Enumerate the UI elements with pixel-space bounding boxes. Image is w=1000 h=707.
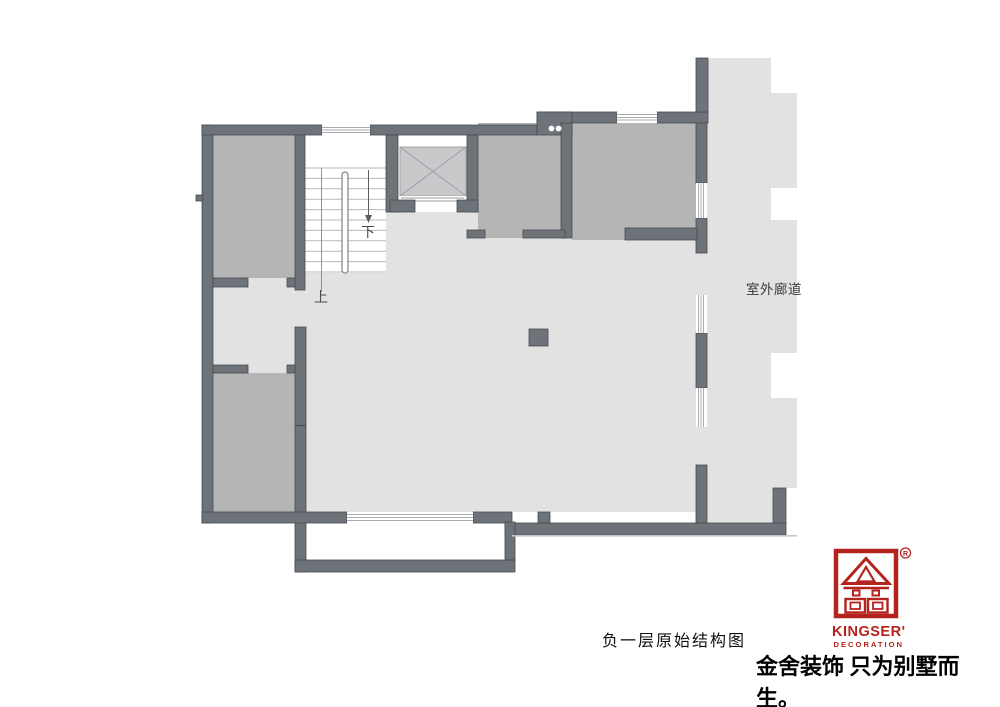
- stair-up-label: 上: [314, 289, 328, 305]
- brand-slogan: 金舍装饰 只为别墅而生。: [756, 649, 1000, 707]
- kingser-logo: R KINGSER' DECORATION: [828, 543, 918, 651]
- window-east-1: [696, 183, 707, 218]
- wall-shadow-line: [512, 535, 797, 537]
- brand-name: KINGSER': [832, 624, 906, 640]
- registered-mark-icon: R: [901, 548, 911, 558]
- stair-handrail: [342, 172, 348, 273]
- window-top-stair: [322, 125, 370, 135]
- logo-mark-icon: [836, 551, 896, 616]
- window-east-2: [696, 295, 707, 333]
- staircase: [305, 135, 386, 292]
- window-top-right: [617, 112, 657, 123]
- corridor-label: 室外廊道: [746, 281, 802, 297]
- page: 室外廊道 下 上 负一层原始结构图 R KINGSER' DECORATION …: [0, 0, 1000, 707]
- plan-caption: 负一层原始结构图: [602, 627, 746, 651]
- brand-subtitle: DECORATION: [834, 640, 904, 649]
- window-bottom: [347, 512, 473, 523]
- window-east-3: [696, 388, 707, 427]
- column: [529, 329, 548, 346]
- stair-down-label: 下: [361, 224, 375, 240]
- svg-text:R: R: [903, 551, 908, 558]
